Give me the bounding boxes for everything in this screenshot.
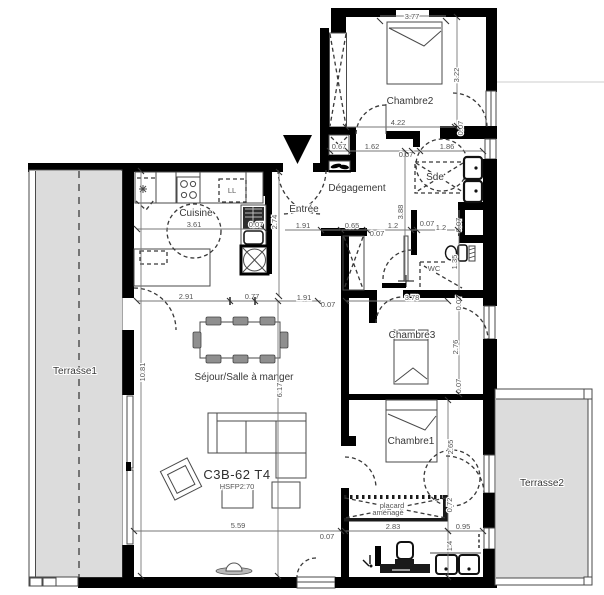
svg-text:6.17: 6.17 <box>275 383 284 398</box>
svg-text:3.77: 3.77 <box>405 12 420 21</box>
svg-text:0.65: 0.65 <box>345 221 360 230</box>
svg-text:1.2: 1.2 <box>436 223 446 232</box>
svg-text:1.62: 1.62 <box>365 142 380 151</box>
svg-text:0.72: 0.72 <box>445 498 454 513</box>
svg-text:Chambre1: Chambre1 <box>388 436 435 447</box>
svg-text:5.59: 5.59 <box>231 521 246 530</box>
svg-text:WC: WC <box>428 264 441 273</box>
svg-text:0.07: 0.07 <box>454 379 463 394</box>
svg-text:1.35: 1.35 <box>450 255 459 270</box>
svg-text:0.07: 0.07 <box>370 229 385 238</box>
svg-text:2.74: 2.74 <box>270 215 279 230</box>
svg-text:Chambre2: Chambre2 <box>387 96 434 107</box>
svg-text:2.65: 2.65 <box>446 440 455 455</box>
svg-text:3.61: 3.61 <box>187 220 202 229</box>
svg-text:2.83: 2.83 <box>386 522 401 531</box>
svg-text:1.91: 1.91 <box>296 221 311 230</box>
svg-text:0.07: 0.07 <box>420 219 435 228</box>
svg-text:Chambre3: Chambre3 <box>389 330 436 341</box>
svg-text:C3B-62 T4: C3B-62 T4 <box>203 467 270 482</box>
svg-text:4.22: 4.22 <box>391 118 406 127</box>
svg-text:Dégagement: Dégagement <box>328 183 385 194</box>
svg-text:aménagé: aménagé <box>372 508 403 517</box>
svg-text:1.2: 1.2 <box>388 221 398 230</box>
svg-text:Terrasse2: Terrasse2 <box>520 478 564 489</box>
svg-text:1.86: 1.86 <box>440 142 455 151</box>
svg-text:0.77: 0.77 <box>245 292 260 301</box>
svg-text:1.91: 1.91 <box>297 293 312 302</box>
svg-text:0.07: 0.07 <box>249 220 264 229</box>
svg-text:Entrée: Entrée <box>289 204 319 215</box>
svg-text:Cuisine: Cuisine <box>179 208 213 219</box>
svg-text:Sde: Sde <box>426 172 444 183</box>
svg-text:10.81: 10.81 <box>138 363 147 382</box>
svg-text:3.88: 3.88 <box>396 205 405 220</box>
svg-text:3.78: 3.78 <box>405 293 420 302</box>
svg-text:3.22: 3.22 <box>452 68 461 83</box>
svg-text:1.4: 1.4 <box>445 541 454 551</box>
svg-text:0.07: 0.07 <box>456 121 465 136</box>
svg-text:Terrasse1: Terrasse1 <box>53 366 97 377</box>
svg-text:0.07: 0.07 <box>321 300 336 309</box>
svg-text:2.91: 2.91 <box>179 292 194 301</box>
svg-text:HSFP2.70: HSFP2.70 <box>220 482 255 491</box>
svg-text:0.67: 0.67 <box>332 142 347 151</box>
svg-text:0.95: 0.95 <box>456 522 471 531</box>
svg-text:Séjour/Salle à manger: Séjour/Salle à manger <box>195 372 295 383</box>
svg-text:2.76: 2.76 <box>451 340 460 355</box>
svg-text:0.07: 0.07 <box>320 532 335 541</box>
svg-text:LL: LL <box>228 186 236 195</box>
